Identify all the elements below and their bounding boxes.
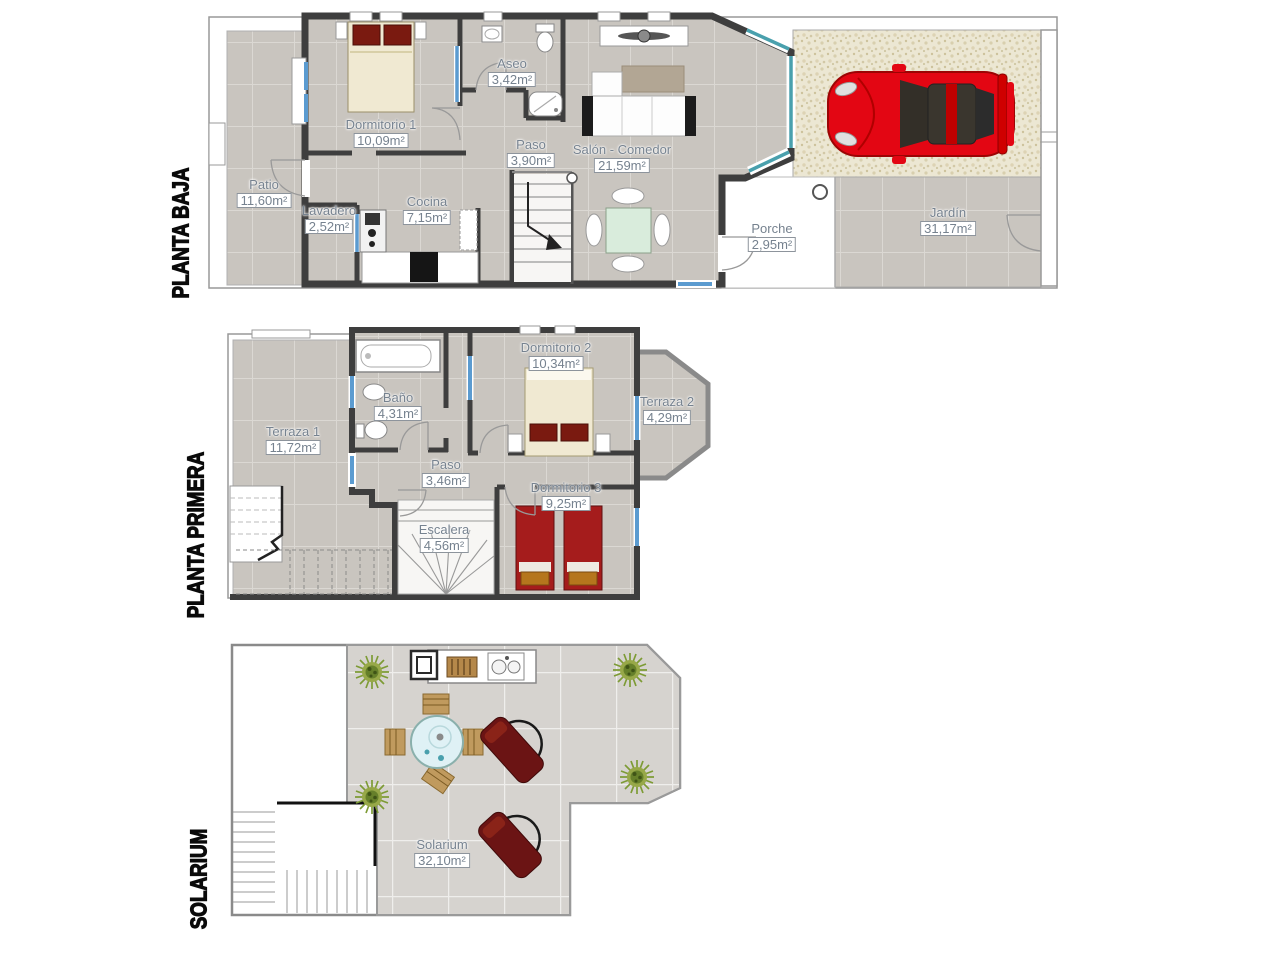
plan-solarium	[232, 645, 680, 915]
room-area-badge: 3,42m²	[488, 72, 536, 88]
room-label-solarium: Solarium 32,10m²	[414, 838, 470, 868]
room-label-dormitorio-3: Dormitorio 3 9,25m²	[531, 481, 602, 511]
room-area-badge: 21,59m²	[594, 158, 650, 174]
patio-window	[209, 123, 225, 165]
room-label-bano: Baño 4,31m²	[374, 391, 422, 421]
double-bed	[336, 22, 426, 112]
room-name: Patio	[237, 178, 292, 192]
room-name: Terraza 1	[266, 425, 321, 439]
room-name: Dormitorio 1	[346, 118, 417, 132]
room-label-cocina: Cocina 7,15m²	[403, 195, 451, 225]
room-area-badge: 4,29m²	[643, 410, 691, 426]
room-name: Jardín	[920, 206, 976, 220]
room-name: Escalera	[419, 523, 470, 537]
room-area-badge: 3,90m²	[507, 153, 555, 169]
room-name: Lavadero	[302, 204, 356, 218]
room-label-patio: Patio 11,60m²	[237, 178, 292, 208]
room-label-jardin: Jardín 31,17m²	[920, 206, 976, 236]
room-area-badge: 2,95m²	[748, 237, 796, 253]
room-label-terraza-2: Terraza 2 4,29m²	[640, 395, 694, 425]
room-name: Dormitorio 3	[531, 481, 602, 495]
room-label-aseo: Aseo 3,42m²	[488, 57, 536, 87]
outdoor-kitchen-counter	[411, 650, 536, 683]
room-label-porche: Porche 2,95m²	[748, 222, 796, 252]
room-area-badge: 10,09m²	[353, 133, 409, 149]
room-name: Paso	[507, 138, 555, 152]
room-area-badge: 9,25m²	[542, 496, 590, 512]
room-area-badge: 7,15m²	[403, 210, 451, 226]
room-label-escalera: Escalera 4,56m²	[419, 523, 470, 553]
room-label-dormitorio-2: Dormitorio 2 10,34m²	[521, 341, 592, 371]
floor-title-solarium: SOLARIUM	[186, 829, 213, 930]
room-label-salon-comedor: Salón - Comedor 21,59m²	[573, 143, 671, 173]
room-label-terraza-1: Terraza 1 11,72m²	[266, 425, 321, 455]
room-area-badge: 2,52m²	[305, 219, 353, 235]
room-name: Baño	[374, 391, 422, 405]
room-area-badge: 11,60m²	[237, 193, 292, 209]
room-name: Salón - Comedor	[573, 143, 671, 157]
room-area-badge: 4,56m²	[420, 538, 468, 554]
room-name: Terraza 2	[640, 395, 694, 409]
room-name: Paso	[422, 458, 470, 472]
floorplan-page: PLANTA BAJA PLANTA PRIMERA SOLARIUM Dorm…	[0, 0, 1280, 960]
terrace-stair-void	[230, 486, 282, 562]
room-name: Solarium	[414, 838, 470, 852]
room-name: Aseo	[488, 57, 536, 71]
room-area-badge: 3,46m²	[422, 473, 470, 489]
room-label-lavadero: Lavadero 2,52m²	[302, 204, 356, 234]
room-area-badge: 4,31m²	[374, 406, 422, 422]
room-name: Dormitorio 2	[521, 341, 592, 355]
room-label-paso-pb: Paso 3,90m²	[507, 138, 555, 168]
room-area-badge: 32,10m²	[414, 853, 470, 869]
floor-title-planta-primera: PLANTA PRIMERA	[183, 452, 210, 619]
room-label-dormitorio-1: Dormitorio 1 10,09m²	[346, 118, 417, 148]
room-label-paso-pp: Paso 3,46m²	[422, 458, 470, 488]
red-car	[828, 64, 1014, 164]
room-name: Porche	[748, 222, 796, 236]
room-area-badge: 31,17m²	[920, 221, 976, 237]
room-area-badge: 10,34m²	[528, 356, 584, 372]
floor-title-planta-baja: PLANTA BAJA	[168, 168, 195, 299]
room-area-badge: 11,72m²	[266, 440, 321, 456]
stairs-ground	[514, 173, 577, 282]
room-name: Cocina	[403, 195, 451, 209]
